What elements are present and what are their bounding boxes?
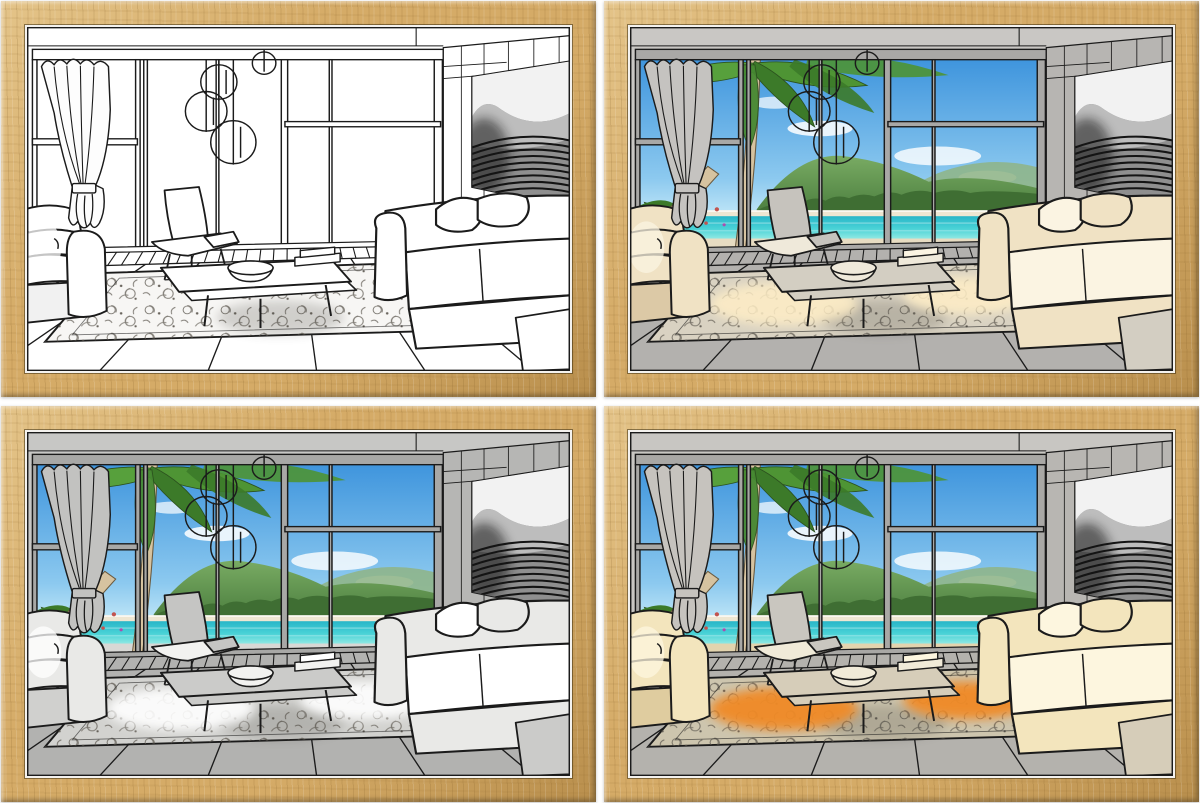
flower-accent [704, 221, 708, 224]
picture-cool-room [27, 432, 570, 776]
framed-print-line-art [1, 1, 596, 397]
wall-art [1062, 61, 1173, 209]
framed-print-warm-room [604, 1, 1199, 397]
picture-warm-room [630, 27, 1173, 371]
wall-art [1062, 466, 1173, 614]
framed-print-sunset-glow [604, 406, 1199, 802]
wall-art [459, 61, 570, 209]
flower-accent [112, 612, 116, 616]
flower-accent [704, 626, 708, 629]
flower-accent [722, 628, 725, 631]
flower-accent [722, 223, 725, 226]
wall-art [459, 466, 570, 614]
side-table [1119, 714, 1173, 776]
flower-accent [715, 207, 719, 211]
side-table [516, 714, 570, 776]
side-table [516, 309, 570, 371]
picture-sunset-glow [630, 432, 1173, 776]
side-table [1119, 309, 1173, 371]
cloud [291, 552, 378, 571]
flower-accent [101, 626, 105, 629]
flower-accent [119, 628, 122, 631]
product-grid [0, 0, 1200, 803]
cloud [894, 147, 981, 166]
framed-print-cool-room [1, 406, 596, 802]
picture-line-art [27, 27, 570, 371]
cloud [894, 552, 981, 571]
flower-accent [715, 612, 719, 616]
